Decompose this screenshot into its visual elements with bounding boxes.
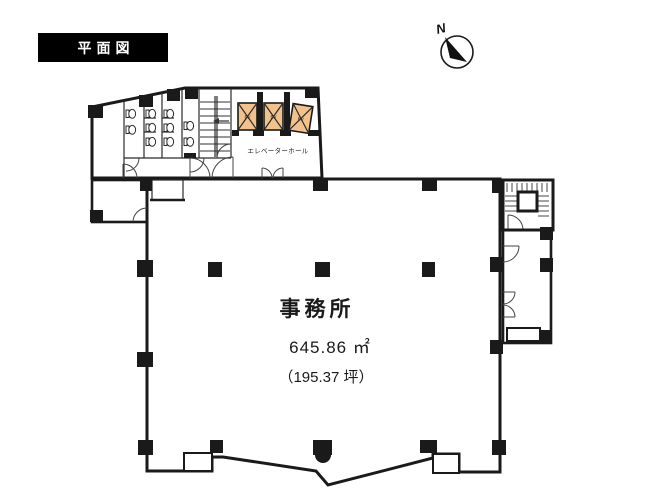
- elevator-car: EV: [238, 103, 257, 130]
- column: [422, 178, 437, 191]
- office-area-tsubo: （195.37 坪）: [278, 369, 373, 386]
- floor-plan-page: 平面図 N: [0, 0, 667, 500]
- column: [490, 340, 503, 354]
- column-round-base: [315, 455, 331, 463]
- toilet-fixture: [126, 109, 194, 146]
- floor-plan-drawing: 平面図 N: [0, 0, 667, 500]
- door-arc: [123, 164, 137, 178]
- column: [539, 330, 551, 343]
- column: [492, 440, 506, 455]
- north-compass: N: [434, 20, 473, 68]
- column: [313, 440, 332, 455]
- elevator-car: EV: [289, 104, 313, 134]
- office-area: [147, 179, 500, 485]
- office-area-sqm: 645.86 ㎡: [289, 338, 371, 357]
- door-arc: [212, 157, 233, 178]
- shaft-void: [507, 328, 540, 341]
- threshold: [184, 153, 196, 158]
- office-label: 事務所: [280, 297, 355, 321]
- door-arc: [503, 305, 515, 317]
- side-room-right: [503, 230, 551, 343]
- door-arc: [190, 158, 204, 172]
- bottom-notch-right: [433, 454, 459, 473]
- column: [305, 88, 318, 98]
- door-arc: [133, 208, 147, 222]
- door-arc: [503, 246, 519, 262]
- column: [208, 262, 222, 277]
- column: [315, 262, 330, 277]
- page-title: 平面図: [78, 40, 135, 56]
- entrance-notch: [152, 180, 183, 200]
- column: [313, 178, 328, 191]
- north-label: N: [434, 20, 447, 37]
- column: [88, 105, 103, 118]
- bottom-notch-left: [184, 453, 212, 471]
- column: [185, 88, 198, 99]
- column: [420, 440, 437, 453]
- office-text-block: 事務所 645.86 ㎡ （195.37 坪）: [278, 297, 373, 386]
- column: [140, 179, 152, 191]
- column: [210, 440, 223, 453]
- emergency-staircase: [503, 180, 553, 230]
- stair-core: [518, 192, 537, 211]
- column: [137, 352, 153, 367]
- elevator-hall-label: エレベーターホール: [247, 146, 308, 155]
- column: [540, 227, 553, 240]
- elevator-car: EV: [264, 103, 283, 130]
- column: [138, 440, 153, 455]
- column: [492, 180, 503, 193]
- elevator-bank: EV EV EV: [232, 92, 321, 136]
- column: [139, 95, 153, 107]
- elevator-label: EV: [297, 116, 304, 122]
- plan-title-box: 平面図: [38, 33, 168, 62]
- elevator-label: EV: [270, 115, 276, 120]
- column: [422, 262, 435, 277]
- column: [540, 258, 553, 272]
- staircase-main: [200, 96, 231, 158]
- column: [90, 210, 103, 222]
- column: [490, 257, 503, 272]
- column: [137, 260, 153, 277]
- door-arc: [508, 215, 523, 230]
- elevator-label: EV: [244, 115, 250, 120]
- door-arc: [503, 292, 515, 304]
- column: [167, 89, 180, 101]
